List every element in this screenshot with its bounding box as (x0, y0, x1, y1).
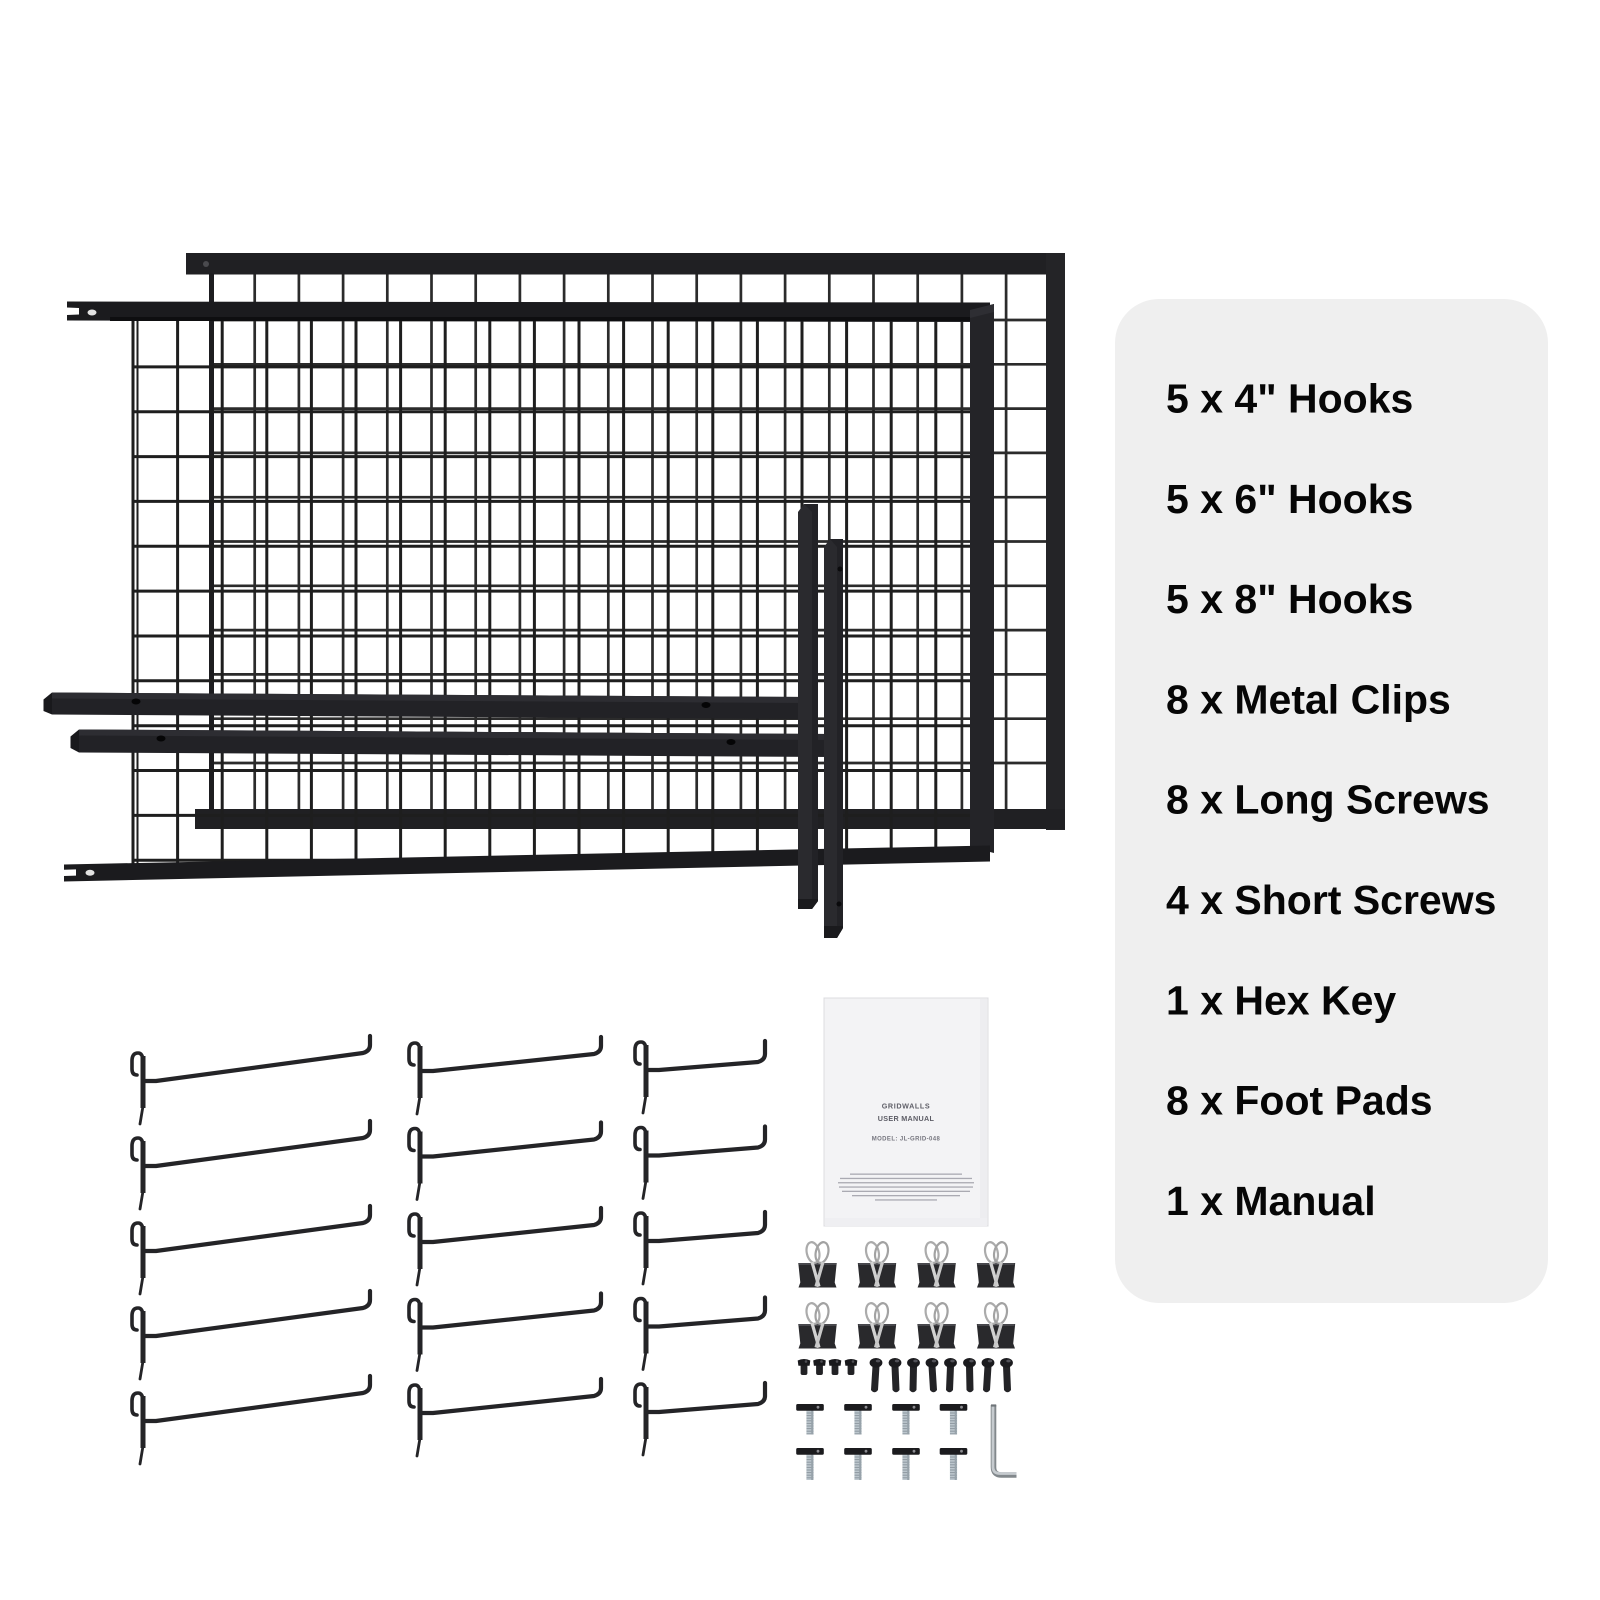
svg-text:1 x Manual: 1 x Manual (1166, 1178, 1376, 1224)
svg-text:4 x Short Screws: 4 x Short Screws (1166, 877, 1496, 923)
svg-text:1 x Hex Key: 1 x Hex Key (1166, 977, 1396, 1023)
svg-text:MODEL: JL-GRID-048: MODEL: JL-GRID-048 (872, 1137, 941, 1143)
svg-text:5 x 8" Hooks: 5 x 8" Hooks (1166, 576, 1413, 622)
svg-text:8 x Long Screws: 8 x Long Screws (1166, 777, 1490, 823)
svg-text:8 x Metal Clips: 8 x Metal Clips (1166, 676, 1451, 722)
svg-text:8 x Foot Pads: 8 x Foot Pads (1166, 1078, 1433, 1124)
svg-text:5 x 6" Hooks: 5 x 6" Hooks (1166, 476, 1413, 522)
svg-text:5 x 4" Hooks: 5 x 4" Hooks (1166, 376, 1413, 422)
svg-text:USER MANUAL: USER MANUAL (878, 1114, 935, 1123)
svg-text:GRIDWALLS: GRIDWALLS (882, 1102, 931, 1111)
